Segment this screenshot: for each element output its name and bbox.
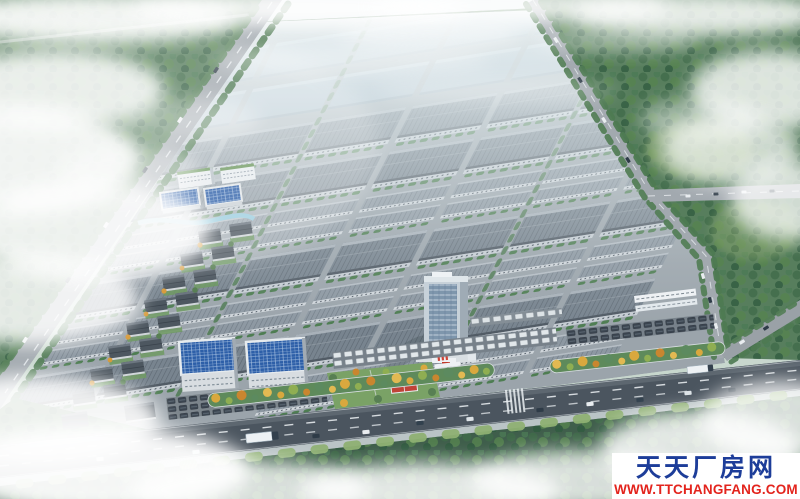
watermark-site-name: 天天厂房网 [636, 455, 776, 480]
watermark-badge: 天天厂房网 WWW.TTCHANGFANG.COM [612, 453, 800, 499]
scene-illustration [0, 0, 800, 499]
watermark-site-url: WWW.TTCHANGFANG.COM [614, 483, 798, 497]
aerial-render-image: 天天厂房网 WWW.TTCHANGFANG.COM [0, 0, 800, 499]
